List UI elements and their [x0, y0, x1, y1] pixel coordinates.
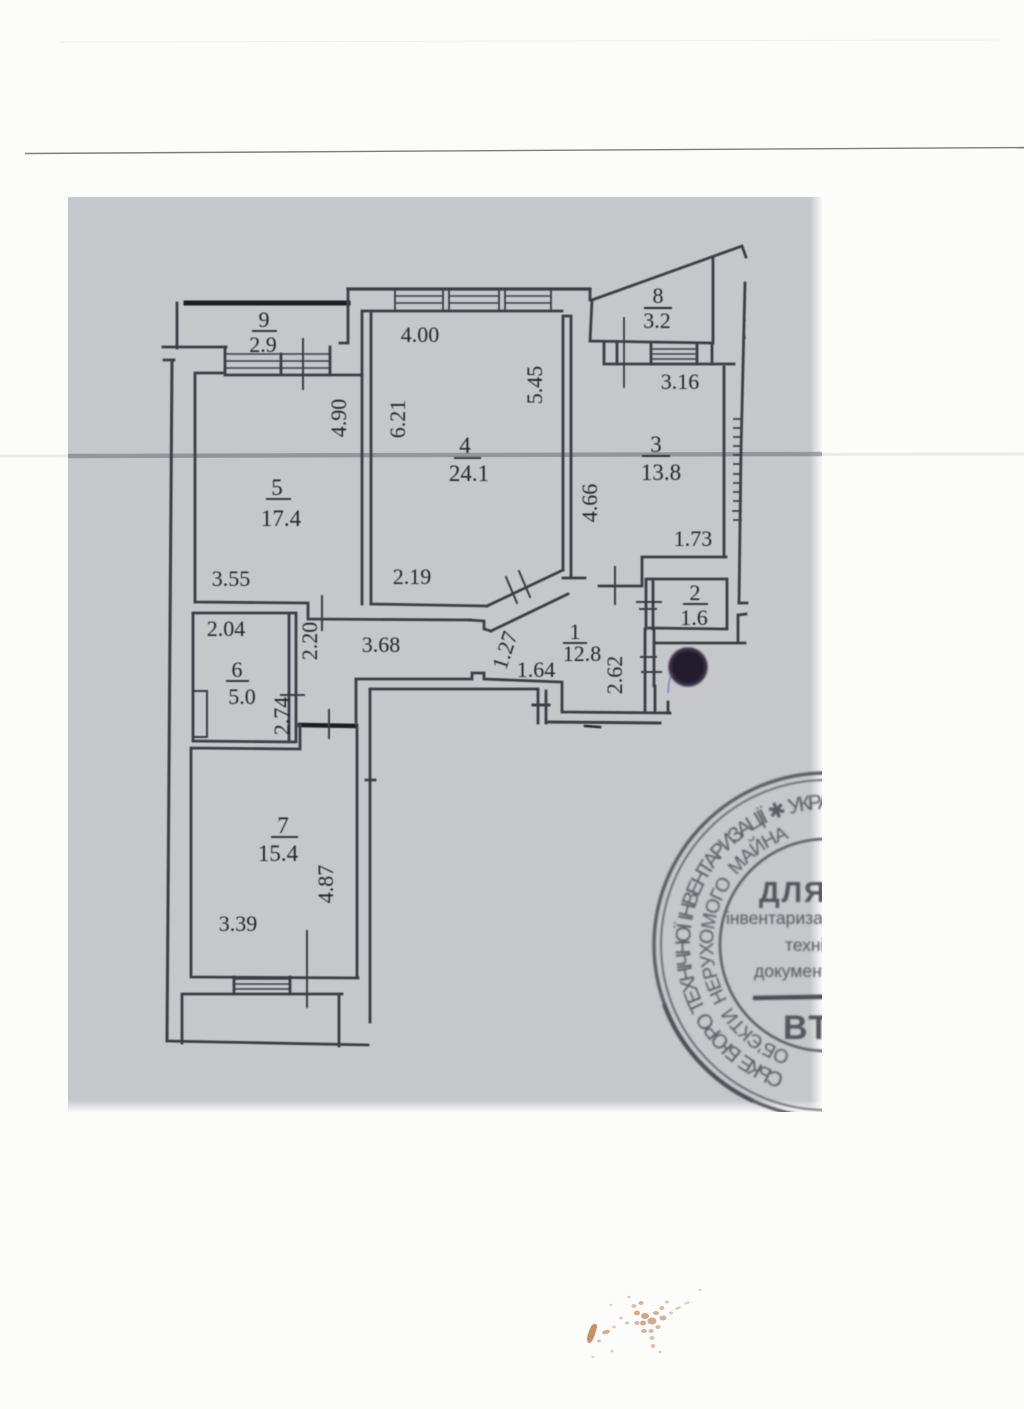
svg-text:4.66: 4.66 — [577, 484, 602, 523]
svg-text:1.73: 1.73 — [674, 526, 713, 551]
svg-text:ДЛЯ ВЕД: ДЛЯ ВЕД — [759, 877, 904, 909]
svg-text:17.4: 17.4 — [261, 506, 302, 531]
svg-text:2.19: 2.19 — [393, 564, 432, 589]
svg-text:3.2: 3.2 — [643, 308, 671, 333]
svg-text:5.45: 5.45 — [522, 366, 547, 405]
svg-text:6: 6 — [232, 657, 243, 682]
svg-text:ВТІ: ВТІ — [783, 1009, 842, 1047]
svg-text:24.1: 24.1 — [449, 461, 489, 486]
svg-text:3: 3 — [650, 432, 662, 457]
svg-text:7: 7 — [277, 813, 289, 838]
svg-text:технічної: технічної — [785, 935, 858, 955]
svg-text:4.87: 4.87 — [313, 865, 338, 904]
svg-text:2.04: 2.04 — [207, 616, 246, 641]
svg-text:6.21: 6.21 — [385, 400, 410, 439]
svg-text:інвентаризаційної т: інвентаризаційної т — [726, 908, 884, 928]
svg-text:3.55: 3.55 — [212, 566, 251, 591]
svg-text:3.16: 3.16 — [661, 369, 700, 394]
svg-text:документації: документації — [754, 961, 858, 981]
svg-text:15.4: 15.4 — [258, 841, 299, 866]
svg-text:3.68: 3.68 — [362, 632, 401, 657]
svg-text:4: 4 — [459, 433, 471, 458]
svg-text:13.8: 13.8 — [641, 460, 681, 485]
svg-text:9: 9 — [259, 307, 270, 332]
svg-text:5.0: 5.0 — [228, 684, 256, 709]
svg-text:3.39: 3.39 — [219, 911, 258, 936]
svg-text:12.8: 12.8 — [563, 641, 602, 666]
svg-text:5: 5 — [271, 475, 283, 500]
svg-text:2.62: 2.62 — [602, 656, 627, 695]
svg-text:2.74: 2.74 — [269, 697, 294, 736]
svg-text:8: 8 — [653, 283, 664, 308]
svg-text:2.9: 2.9 — [249, 332, 277, 357]
svg-text:1.6: 1.6 — [680, 605, 708, 630]
svg-text:1.64: 1.64 — [517, 657, 556, 682]
svg-text:4.00: 4.00 — [401, 322, 440, 347]
svg-text:2: 2 — [690, 580, 701, 605]
svg-text:4.90: 4.90 — [326, 399, 351, 438]
svg-text:2.20: 2.20 — [297, 622, 322, 661]
